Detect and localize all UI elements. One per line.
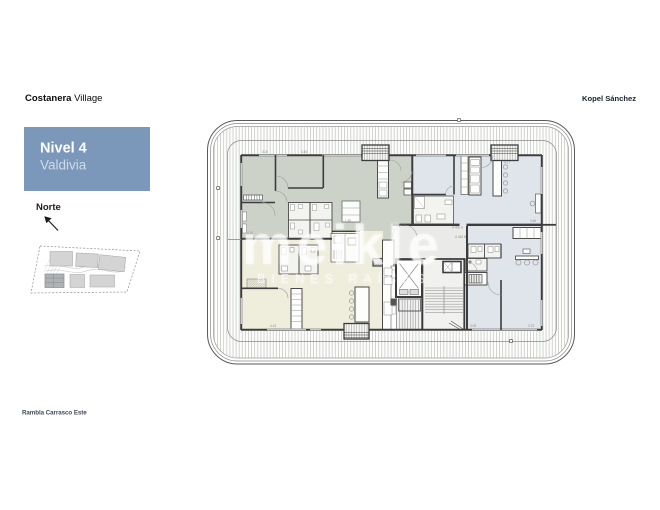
svg-text:A 400 S: A 400 S [452, 226, 463, 230]
svg-text:Costanera Village: Costanera Village [25, 93, 102, 104]
svg-text:4.17: 4.17 [504, 161, 510, 165]
svg-text:3.45: 3.45 [301, 150, 307, 154]
svg-text:3.05: 3.05 [470, 324, 476, 328]
svg-text:Kopel Sánchez: Kopel Sánchez [582, 94, 636, 103]
svg-text:4.24: 4.24 [270, 324, 276, 328]
svg-text:BIENES RAÍCES: BIENES RAÍCES [257, 271, 431, 286]
svg-text:3.70: 3.70 [528, 324, 534, 328]
svg-text:Valdivia: Valdivia [40, 158, 87, 173]
svg-text:A 445 B: A 445 B [455, 235, 466, 239]
svg-text:3.66: 3.66 [530, 219, 536, 223]
svg-text:Rambla Carrasco Este: Rambla Carrasco Este [22, 410, 87, 417]
svg-text:3.20: 3.20 [262, 150, 268, 154]
svg-text:Norte: Norte [36, 202, 61, 213]
svg-text:Nivel 4: Nivel 4 [40, 141, 87, 157]
svg-text:meikle: meikle [242, 213, 443, 276]
